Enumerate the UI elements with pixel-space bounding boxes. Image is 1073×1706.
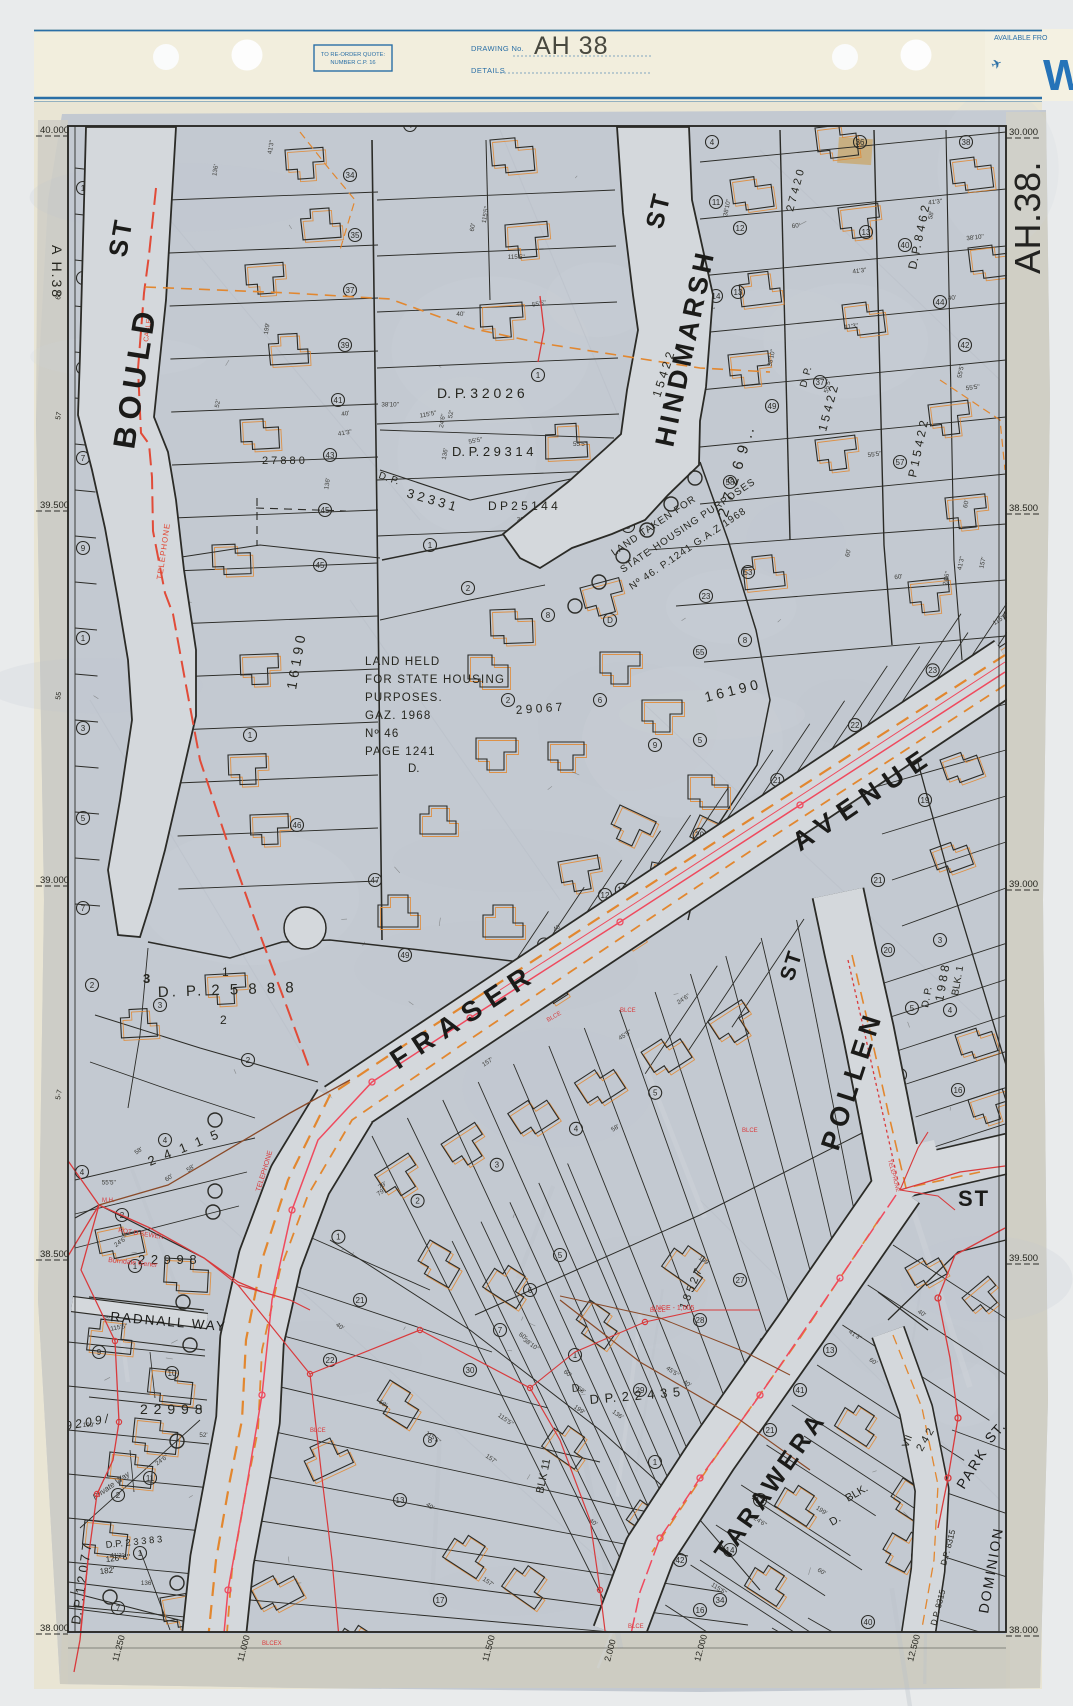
svg-text:2: 2 bbox=[246, 1056, 251, 1065]
svg-text:2 2 9 9 8: 2 2 9 9 8 bbox=[140, 1401, 204, 1417]
svg-text:39.500: 39.500 bbox=[1009, 1253, 1038, 1264]
svg-text:11: 11 bbox=[146, 1474, 155, 1483]
svg-text:7: 7 bbox=[116, 1604, 121, 1613]
svg-text:2 7 8 8 0: 2 7 8 8 0 bbox=[262, 455, 305, 467]
svg-text:21: 21 bbox=[874, 876, 883, 885]
svg-text:4: 4 bbox=[574, 1125, 579, 1134]
svg-text:13: 13 bbox=[826, 1346, 835, 1355]
svg-text:7: 7 bbox=[81, 904, 86, 913]
svg-text:44: 44 bbox=[936, 298, 945, 307]
svg-text:55'5'': 55'5'' bbox=[102, 1180, 116, 1187]
svg-text:5: 5 bbox=[81, 814, 86, 823]
svg-text:45: 45 bbox=[316, 561, 325, 570]
svg-text:3: 3 bbox=[495, 1161, 500, 1170]
svg-text:1: 1 bbox=[138, 1549, 143, 1558]
svg-text:35: 35 bbox=[351, 231, 360, 240]
svg-text:40: 40 bbox=[864, 1618, 873, 1627]
svg-text:4: 4 bbox=[163, 1136, 168, 1145]
svg-text:27: 27 bbox=[736, 1276, 745, 1285]
svg-text:40': 40' bbox=[456, 311, 464, 318]
svg-text:40': 40' bbox=[948, 294, 957, 302]
svg-text:40.000: 40.000 bbox=[40, 125, 69, 136]
svg-text:LNCE - 1,005: LNCE - 1,005 bbox=[652, 1305, 695, 1312]
svg-text:182': 182' bbox=[99, 1565, 115, 1576]
svg-text:3: 3 bbox=[158, 1001, 163, 1010]
svg-text:BLCE: BLCE bbox=[310, 1428, 326, 1434]
svg-text:Nº 46: Nº 46 bbox=[365, 728, 400, 740]
svg-text:10: 10 bbox=[168, 1369, 177, 1378]
svg-text:1: 1 bbox=[536, 371, 541, 380]
svg-text:2: 2 bbox=[90, 981, 95, 990]
svg-text:41: 41 bbox=[796, 1386, 805, 1395]
svg-text:6: 6 bbox=[598, 696, 603, 705]
svg-text:46: 46 bbox=[293, 821, 302, 830]
svg-text:57: 57 bbox=[55, 411, 63, 420]
svg-text:52': 52' bbox=[447, 410, 455, 419]
svg-text:38.000: 38.000 bbox=[40, 1623, 69, 1634]
svg-text:49: 49 bbox=[768, 402, 777, 411]
svg-text:AVAILABLE FRO: AVAILABLE FRO bbox=[994, 35, 1048, 42]
svg-text:60': 60' bbox=[894, 573, 903, 581]
svg-text:BLCEX: BLCEX bbox=[262, 1641, 282, 1647]
svg-text:20: 20 bbox=[884, 946, 893, 955]
svg-text:39.000: 39.000 bbox=[40, 875, 69, 886]
svg-text:21: 21 bbox=[356, 1296, 365, 1305]
svg-text:41: 41 bbox=[334, 396, 343, 405]
svg-text:30: 30 bbox=[466, 1366, 475, 1375]
svg-text:12: 12 bbox=[736, 224, 745, 233]
svg-text:3: 3 bbox=[938, 936, 943, 945]
svg-text:2: 2 bbox=[415, 1197, 420, 1206]
svg-text:7: 7 bbox=[498, 1326, 503, 1335]
svg-text:PURPOSES.: PURPOSES. bbox=[365, 692, 443, 704]
svg-text:36: 36 bbox=[856, 138, 865, 147]
svg-text:W: W bbox=[1043, 51, 1073, 100]
svg-text:D P 2 5 1 4 4: D P 2 5 1 4 4 bbox=[488, 499, 558, 513]
svg-text:5: 5 bbox=[653, 1089, 658, 1098]
svg-text:LAND HELD: LAND HELD bbox=[365, 656, 440, 668]
svg-text:38'10'': 38'10'' bbox=[381, 402, 399, 409]
svg-text:FOR STATE HOUSING: FOR STATE HOUSING bbox=[365, 674, 505, 686]
svg-text:34: 34 bbox=[346, 171, 355, 180]
svg-text:7: 7 bbox=[81, 454, 86, 463]
svg-text:42: 42 bbox=[961, 341, 970, 350]
svg-text:8: 8 bbox=[743, 636, 748, 645]
svg-text:39.000: 39.000 bbox=[1009, 879, 1038, 890]
svg-text:PAGE 1241: PAGE 1241 bbox=[365, 746, 436, 758]
svg-text:22: 22 bbox=[851, 721, 860, 730]
svg-text:9: 9 bbox=[653, 741, 658, 750]
svg-text:9: 9 bbox=[81, 544, 86, 553]
svg-text:9: 9 bbox=[97, 1348, 102, 1357]
svg-text:34: 34 bbox=[716, 1596, 725, 1605]
svg-text:BLCE: BLCE bbox=[620, 1008, 636, 1014]
svg-text:53: 53 bbox=[744, 568, 753, 577]
svg-text:2: 2 bbox=[506, 696, 511, 705]
svg-text:BLCE: BLCE bbox=[628, 1624, 644, 1630]
svg-text:60: 60 bbox=[55, 291, 63, 300]
svg-text:52': 52' bbox=[214, 399, 222, 408]
svg-text:A H.38: A H.38 bbox=[49, 245, 65, 299]
svg-text:38.000: 38.000 bbox=[1009, 1625, 1038, 1636]
svg-text:D.: D. bbox=[571, 1382, 583, 1395]
svg-text:GAZ. 1968: GAZ. 1968 bbox=[365, 710, 431, 722]
svg-text:38.500: 38.500 bbox=[1009, 503, 1038, 514]
svg-text:D.: D. bbox=[408, 763, 420, 775]
svg-text:115'5'': 115'5'' bbox=[508, 254, 525, 261]
svg-text:38: 38 bbox=[962, 138, 971, 147]
svg-text:D. P. 3 2 0 2 6: D. P. 3 2 0 2 6 bbox=[437, 385, 525, 401]
svg-text:1: 1 bbox=[222, 965, 229, 979]
svg-text:60': 60' bbox=[791, 222, 800, 230]
svg-text:5: 5 bbox=[910, 1004, 915, 1013]
svg-text:D. P. 2 9 3 1 4: D. P. 2 9 3 1 4 bbox=[452, 444, 533, 459]
svg-text:28: 28 bbox=[696, 1316, 705, 1325]
svg-text:136': 136' bbox=[141, 1580, 153, 1587]
svg-text:TO RE-ORDER QUOTE:: TO RE-ORDER QUOTE: bbox=[321, 52, 386, 58]
svg-text:19: 19 bbox=[921, 796, 930, 805]
svg-text:13: 13 bbox=[396, 1496, 405, 1505]
svg-text:60': 60' bbox=[469, 223, 477, 232]
svg-text:23: 23 bbox=[928, 666, 937, 675]
svg-text:16: 16 bbox=[696, 1606, 705, 1615]
svg-text:4: 4 bbox=[948, 1006, 953, 1015]
svg-text:3: 3 bbox=[81, 724, 86, 733]
svg-text:30.000: 30.000 bbox=[1009, 127, 1038, 138]
svg-text:2: 2 bbox=[466, 584, 471, 593]
svg-text:13: 13 bbox=[862, 228, 871, 237]
svg-text:17: 17 bbox=[436, 1596, 445, 1605]
svg-text:4: 4 bbox=[80, 1168, 85, 1177]
svg-text:1: 1 bbox=[81, 634, 86, 643]
svg-text:2: 2 bbox=[220, 1013, 227, 1027]
svg-text:3: 3 bbox=[143, 971, 150, 986]
svg-text:1: 1 bbox=[336, 1233, 341, 1242]
svg-text:22: 22 bbox=[326, 1356, 335, 1365]
svg-text:55'5'': 55'5'' bbox=[573, 441, 587, 448]
svg-text:NUMBER C.P. 16: NUMBER C.P. 16 bbox=[330, 60, 375, 66]
svg-text:55: 55 bbox=[696, 648, 705, 657]
svg-text:39: 39 bbox=[341, 341, 350, 350]
svg-text:47: 47 bbox=[371, 876, 380, 885]
svg-text:6: 6 bbox=[528, 1286, 533, 1295]
svg-text:2: 2 bbox=[116, 1491, 121, 1500]
svg-text:55: 55 bbox=[55, 691, 63, 700]
svg-text:BLCE: BLCE bbox=[742, 1128, 758, 1134]
svg-text:D: D bbox=[607, 616, 613, 625]
svg-text:39.500: 39.500 bbox=[40, 500, 69, 511]
svg-text:21: 21 bbox=[766, 1426, 775, 1435]
svg-text:13: 13 bbox=[734, 288, 743, 297]
svg-text:5: 5 bbox=[558, 1251, 563, 1260]
svg-text:1: 1 bbox=[653, 1458, 658, 1467]
svg-text:1: 1 bbox=[248, 731, 253, 740]
svg-text:57: 57 bbox=[896, 458, 905, 467]
svg-text:4: 4 bbox=[710, 138, 715, 147]
svg-text:DETAILS: DETAILS bbox=[471, 66, 505, 75]
svg-text:DRAWING No.: DRAWING No. bbox=[471, 44, 524, 53]
svg-text:1: 1 bbox=[428, 541, 433, 550]
svg-text:37: 37 bbox=[346, 286, 355, 295]
svg-text:38.500: 38.500 bbox=[40, 1249, 69, 1260]
svg-text:52': 52' bbox=[199, 1432, 207, 1439]
svg-text:49: 49 bbox=[401, 951, 410, 960]
svg-text:43: 43 bbox=[326, 451, 335, 460]
svg-text:8: 8 bbox=[546, 611, 551, 620]
svg-text:11: 11 bbox=[712, 198, 721, 207]
svg-text:5: 5 bbox=[698, 736, 703, 745]
svg-text:23: 23 bbox=[702, 592, 711, 601]
svg-text:ST: ST bbox=[958, 1186, 990, 1211]
svg-text:AH.38.: AH.38. bbox=[1007, 161, 1048, 274]
svg-text:16: 16 bbox=[954, 1086, 963, 1095]
svg-text:40': 40' bbox=[341, 410, 350, 418]
